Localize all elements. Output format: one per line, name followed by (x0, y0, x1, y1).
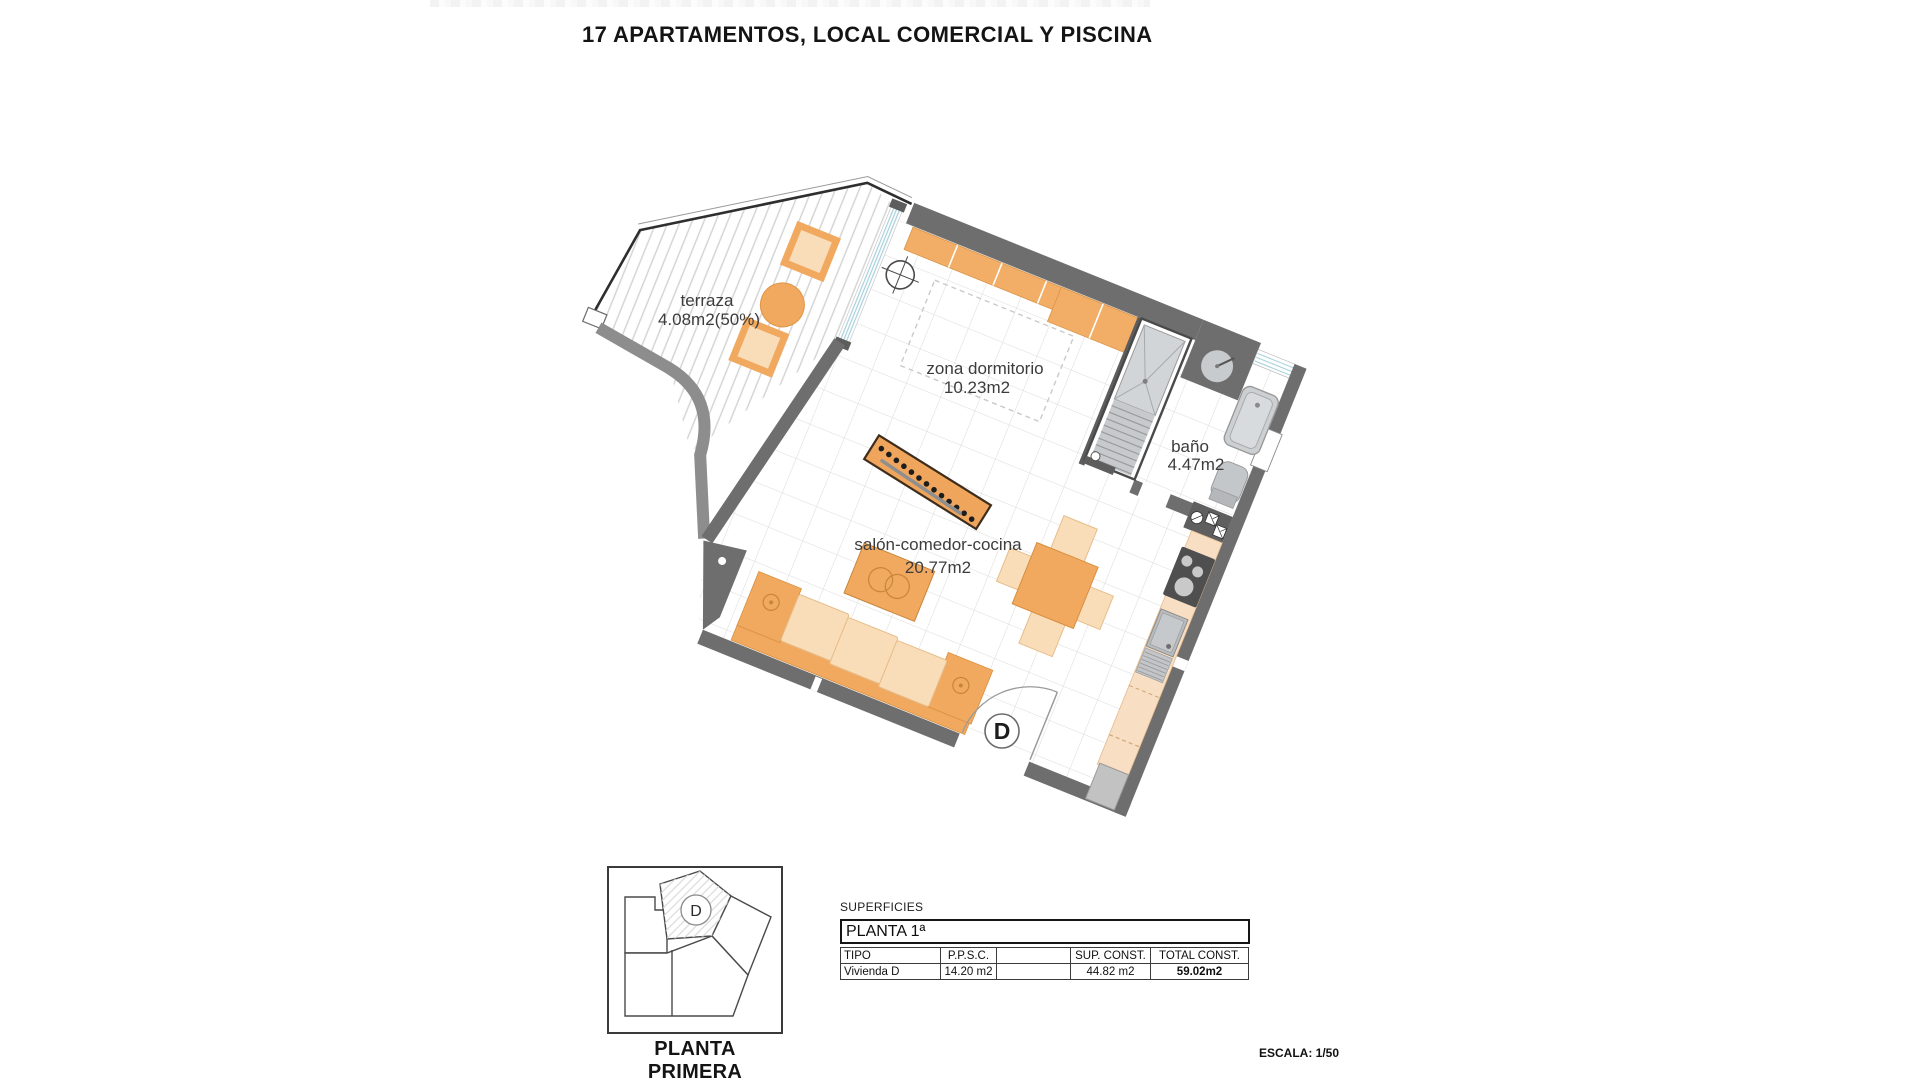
page-title: 17 APARTAMENTOS, LOCAL COMERCIAL Y PISCI… (582, 22, 1153, 48)
header-empty (997, 948, 1071, 964)
surfaces-header-row: TIPO P.P.S.C. SUP. CONST. TOTAL CONST. (841, 948, 1249, 964)
surfaces-table: TIPO P.P.S.C. SUP. CONST. TOTAL CONST. V… (840, 947, 1249, 980)
cell-empty (997, 964, 1071, 980)
door-letter: D (994, 718, 1011, 744)
header-total-const: TOTAL CONST. (1151, 948, 1249, 964)
label-bano-area: 4.47m2 (1168, 455, 1225, 474)
label-salon: salón-comedor-cocina (854, 535, 1022, 554)
label-salon-area: 20.77m2 (905, 558, 971, 577)
header-ppsc: P.P.S.C. (941, 948, 997, 964)
key-plan: D (608, 867, 782, 1033)
surfaces-data-row: Vivienda D 14.20 m2 44.82 m2 59.02m2 (841, 964, 1249, 980)
key-unit-letter: D (690, 903, 702, 920)
page: 17 APARTAMENTOS, LOCAL COMERCIAL Y PISCI… (0, 0, 1920, 1080)
label-terraza-area: 4.08m2(50%) (658, 310, 760, 329)
surfaces-section-label: SUPERFICIES (840, 900, 1250, 914)
header-tipo: TIPO (841, 948, 941, 964)
cropped-text-artifact (430, 0, 1150, 7)
scale-label: ESCALA: 1/50 (1259, 1046, 1339, 1060)
key-plan-caption: PLANTA PRIMERA (608, 1038, 782, 1080)
cell-total-const: 59.02m2 (1151, 964, 1249, 980)
cell-ppsc: 14.20 m2 (941, 964, 997, 980)
label-bano: baño (1171, 437, 1209, 456)
cell-sup-const: 44.82 m2 (1071, 964, 1151, 980)
label-dormitorio-area: 10.23m2 (944, 378, 1010, 397)
surfaces-panel: SUPERFICIES PLANTA 1ª TIPO P.P.S.C. SUP.… (840, 900, 1250, 980)
cell-tipo: Vivienda D (841, 964, 941, 980)
door-circle: D (985, 714, 1019, 748)
label-terraza: terraza (681, 291, 734, 310)
floor-label-box: PLANTA 1ª (840, 919, 1250, 944)
label-dormitorio: zona dormitorio (926, 359, 1043, 378)
header-sup-const: SUP. CONST. (1071, 948, 1151, 964)
